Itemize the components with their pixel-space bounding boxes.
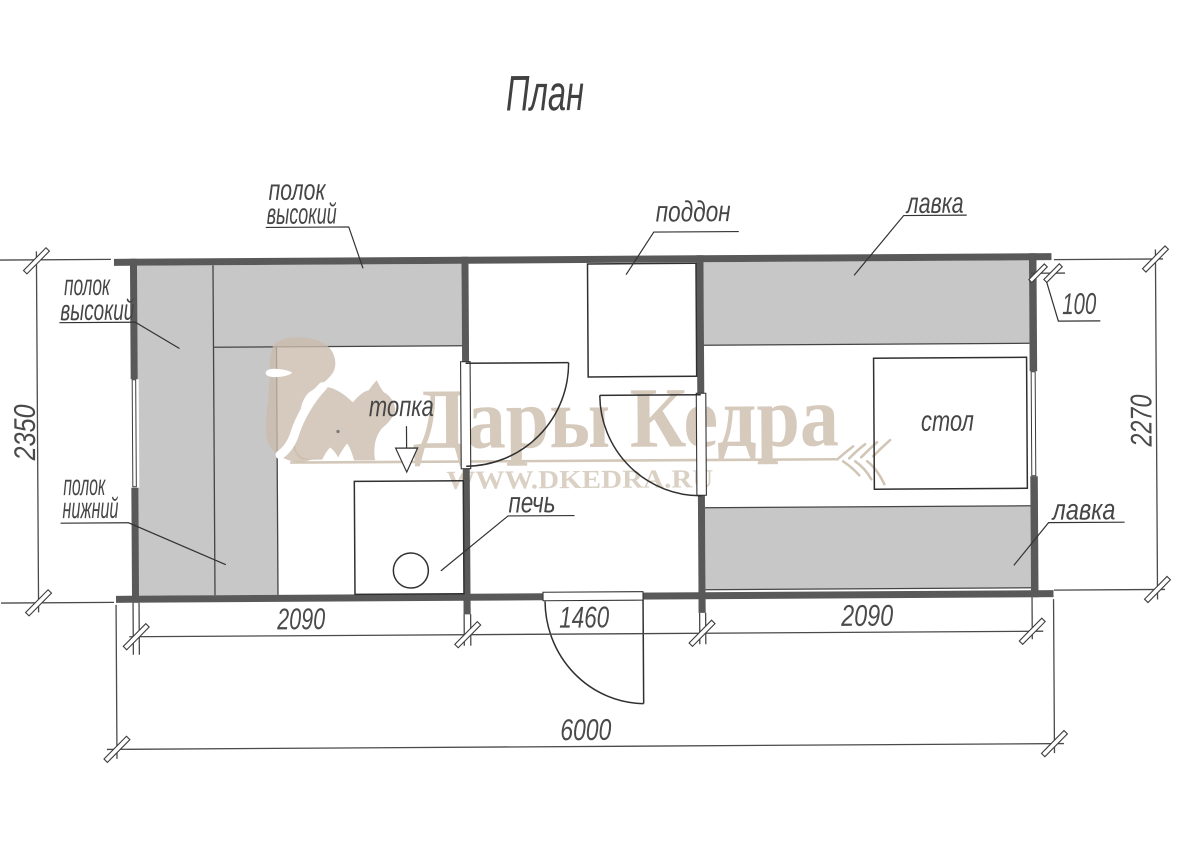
svg-text:100: 100 xyxy=(1062,288,1096,321)
svg-text:нижний: нижний xyxy=(62,493,118,525)
svg-text:поддон: поддон xyxy=(656,196,731,228)
svg-text:стол: стол xyxy=(921,406,974,438)
svg-text:6000: 6000 xyxy=(560,714,611,747)
svg-text:2270: 2270 xyxy=(1125,394,1158,447)
svg-text:План: План xyxy=(506,65,584,121)
svg-text:2090: 2090 xyxy=(276,603,325,636)
svg-text:2090: 2090 xyxy=(840,600,893,633)
svg-text:печь: печь xyxy=(508,487,555,519)
svg-text:1460: 1460 xyxy=(559,601,609,634)
svg-text:высокий: высокий xyxy=(267,199,337,231)
svg-text:Дары Кедра: Дары Кедра xyxy=(413,368,840,467)
svg-text:2350: 2350 xyxy=(9,404,42,461)
svg-text:WWW.DKEDRA.RU: WWW.DKEDRA.RU xyxy=(446,464,713,495)
svg-text:топка: топка xyxy=(369,391,434,423)
